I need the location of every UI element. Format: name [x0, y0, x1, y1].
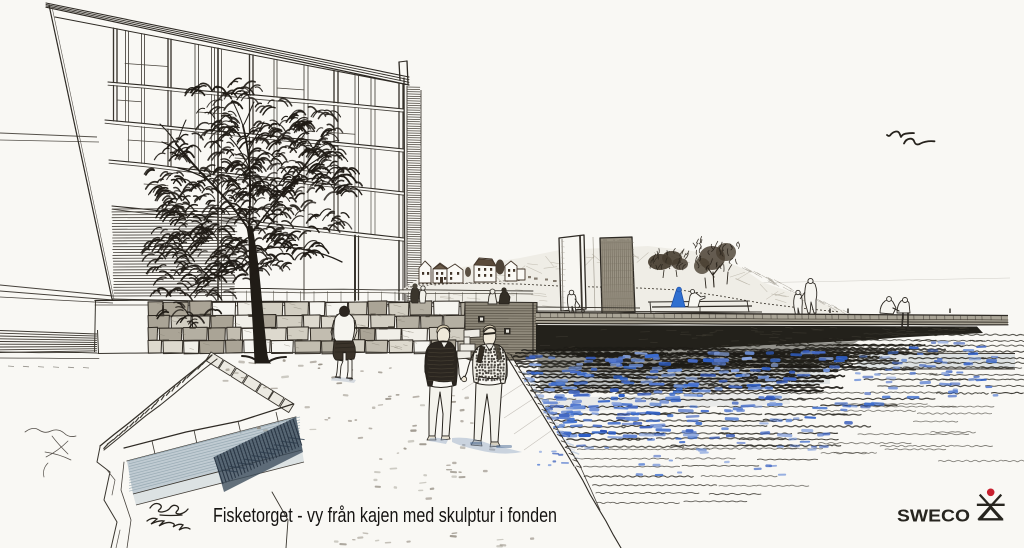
svg-text:SWECO: SWECO: [897, 506, 970, 526]
svg-text:Fisketorget - vy från kajen me: Fisketorget - vy från kajen med skulptur…: [213, 505, 557, 527]
